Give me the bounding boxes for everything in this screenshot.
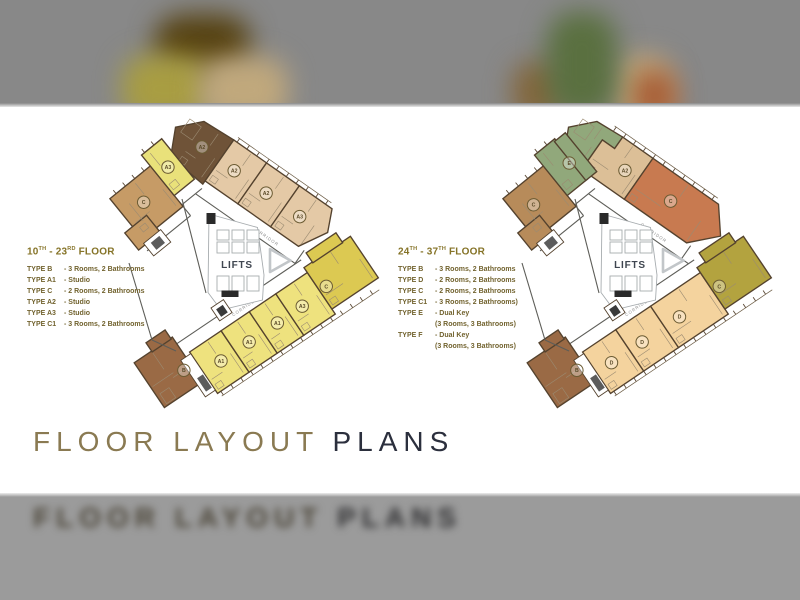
svg-text:A1: A1 [218,359,225,365]
svg-text:D: D [640,340,644,346]
svg-text:B: B [575,368,579,374]
svg-text:LIFTS: LIFTS [614,260,646,271]
svg-text:C: C [324,284,328,290]
svg-text:A2: A2 [231,169,238,175]
svg-text:A3: A3 [296,215,303,221]
svg-text:A2: A2 [199,145,206,151]
svg-text:A1: A1 [246,340,253,346]
svg-text:B: B [182,368,186,374]
svg-text:C: C [669,199,673,205]
svg-text:C: C [142,200,146,206]
svg-text:D: D [678,315,682,321]
svg-text:A1: A1 [274,321,281,327]
svg-text:C: C [717,284,721,290]
svg-text:A3: A3 [165,165,172,171]
svg-text:LIFTS: LIFTS [221,260,253,271]
svg-text:E: E [567,161,571,167]
svg-text:C: C [532,203,536,209]
svg-text:D: D [610,361,614,367]
svg-text:A3: A3 [299,304,306,310]
svg-text:A2: A2 [263,191,270,197]
svg-text:A2: A2 [622,168,629,174]
